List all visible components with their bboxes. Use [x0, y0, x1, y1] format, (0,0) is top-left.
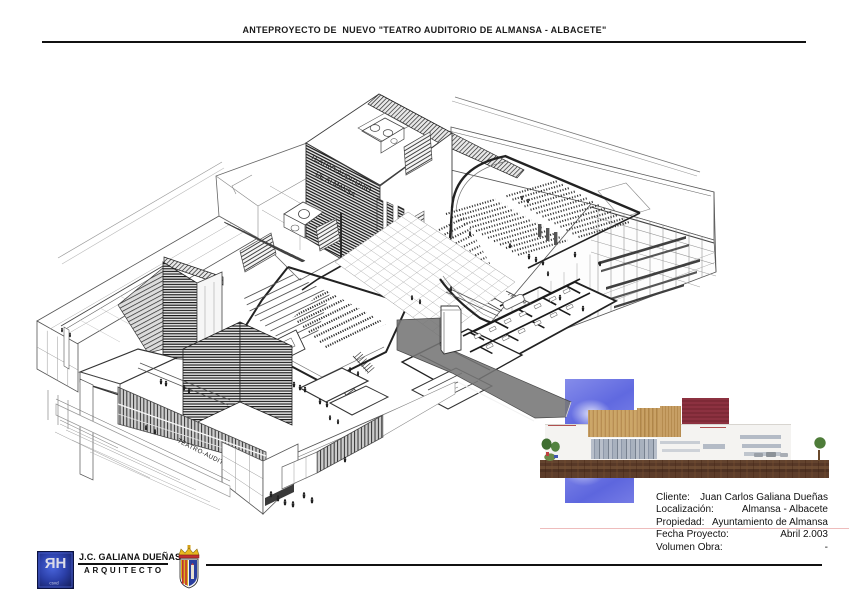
svg-text:ЯH: ЯH: [45, 555, 67, 572]
svg-text:csvd: csvd: [49, 581, 59, 586]
